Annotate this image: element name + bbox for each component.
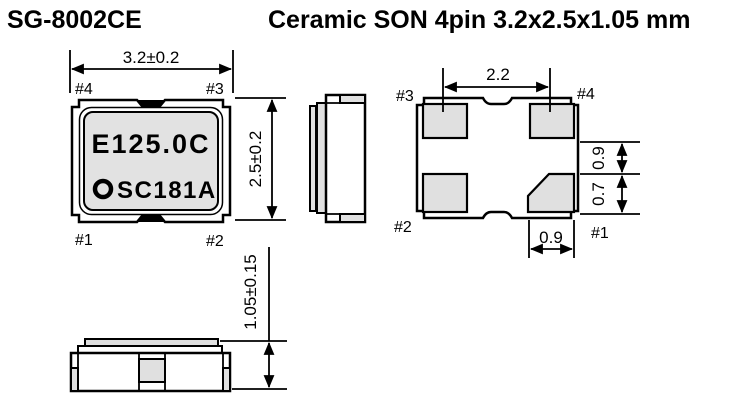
left-terminal-pad [71,368,78,391]
dim-width-label: 3.2±0.2 [123,48,180,67]
front-view: 1.05±0.15 [71,247,287,391]
pin-label-3: #3 [396,88,414,105]
bottom-view: 2.2 0.9 0.7 0.9 #3 #4 #2 #1 [394,65,640,258]
right-terminal-pad [223,368,230,391]
pin-label-2: #2 [394,219,412,236]
marking-lot-code: SC181A [117,177,217,204]
pin-label-4: #4 [577,86,595,103]
pin-label-3: #3 [206,81,224,98]
lid-top-layer [85,339,218,346]
top-terminal-pad [340,95,365,103]
dim-right-lower-label: 0.7 [589,182,608,206]
pad-3 [423,104,467,138]
lid-layer-outer [310,106,316,211]
datasheet-page: SG-8002CE Ceramic SON 4pin 3.2x2.5x1.05 … [0,0,738,410]
mechanical-drawing: E125.0C SC181A 3.2±0.2 2.5±0.2 #4 #3 #1 … [0,0,738,410]
lid-layer-inner [317,103,326,213]
bottom-terminal-pad [340,214,365,222]
pin-label-1: #1 [591,225,609,242]
dim-pad-pitch-label: 2.2 [486,65,510,84]
pin-label-4: #4 [75,81,93,98]
dim-thickness-label: 1.05±0.15 [241,254,260,330]
pad-2 [423,174,467,212]
pin-label-1: #1 [75,232,93,249]
top-view: E125.0C SC181A 3.2±0.2 2.5±0.2 #4 #3 #1 … [70,48,286,250]
pin-label-2: #2 [206,233,224,250]
dim-right-upper-label: 0.9 [589,146,608,170]
dim-pad-width-label: 0.9 [539,228,563,247]
package-outline-side-view [326,95,365,222]
pad-4 [530,104,574,138]
center-terminal-pad [139,359,165,382]
side-view [310,95,365,222]
dim-height-label: 2.5±0.2 [246,131,265,188]
marking-frequency-code: E125.0C [91,129,210,159]
